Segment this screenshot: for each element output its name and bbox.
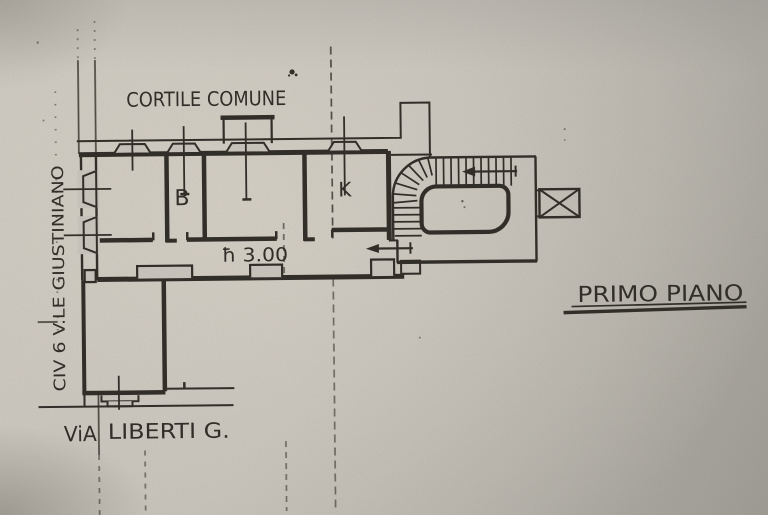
paper-grain-texture xyxy=(0,0,768,515)
scanned-floor-plan-page: CORTILE COMUNE B K ħ 3.00 PRIMO PIANO Vi… xyxy=(0,0,768,515)
floor-plan-drawing: CORTILE COMUNE B K ħ 3.00 PRIMO PIANO Vi… xyxy=(0,0,768,515)
